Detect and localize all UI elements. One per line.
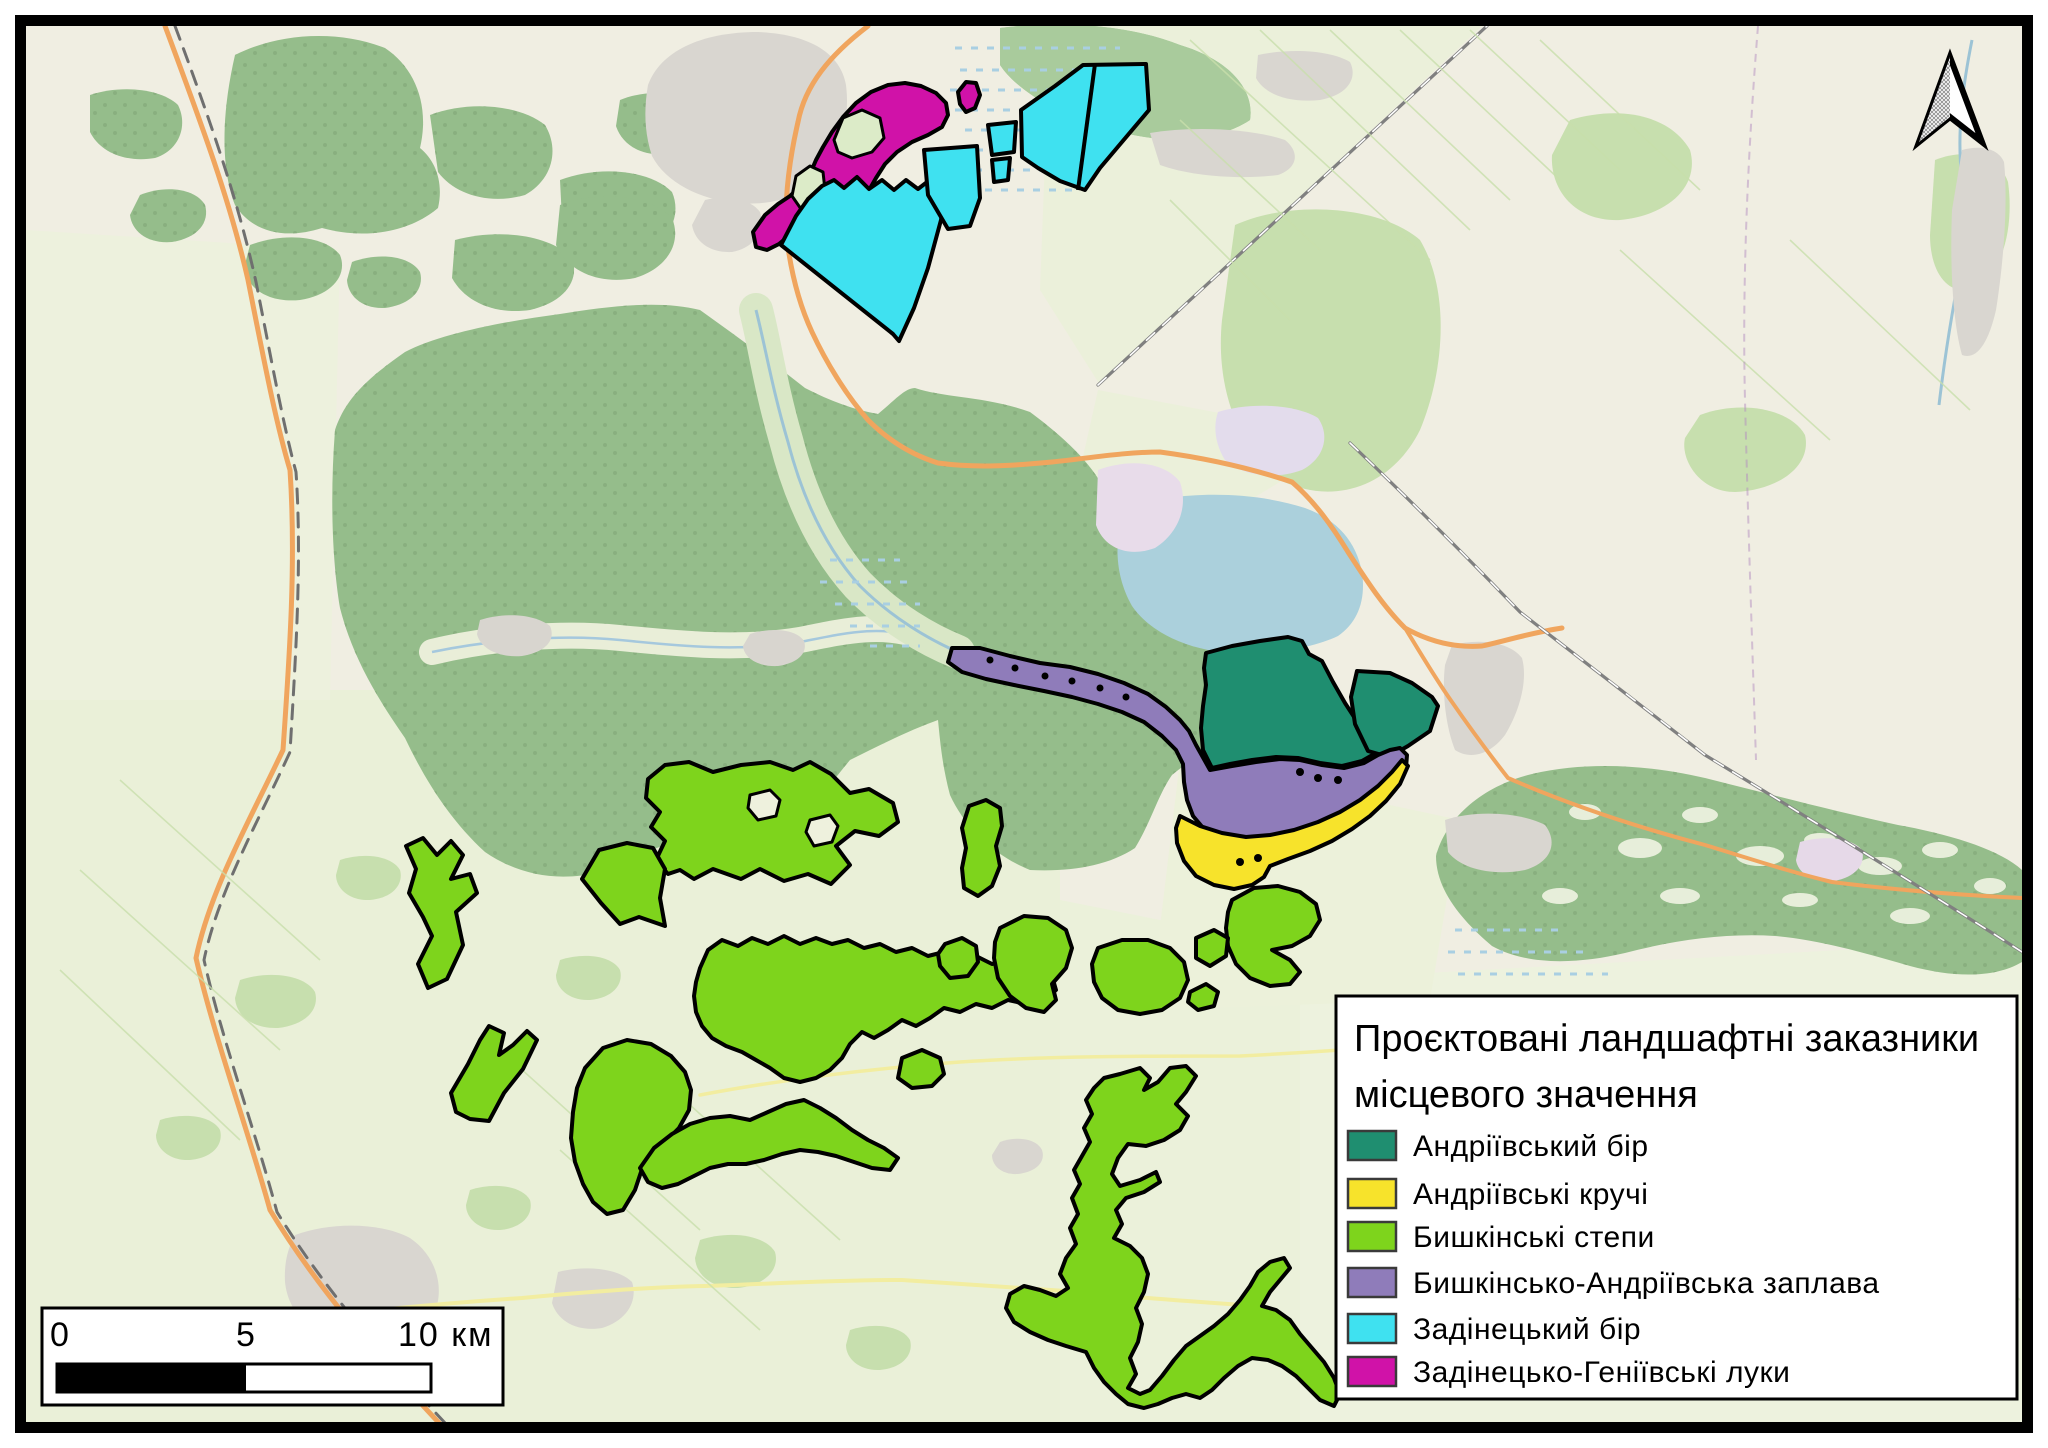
svg-text:Андріївський бір: Андріївський бір bbox=[1413, 1130, 1649, 1163]
svg-text:Проєктовані ландшафтні заказни: Проєктовані ландшафтні заказники bbox=[1354, 1018, 1979, 1060]
svg-text:0: 0 bbox=[50, 1316, 69, 1354]
svg-text:Задінецький бір: Задінецький бір bbox=[1413, 1313, 1641, 1346]
svg-text:Андріївські кручі: Андріївські кручі bbox=[1413, 1178, 1648, 1211]
svg-text:5: 5 bbox=[236, 1316, 255, 1354]
svg-text:Бишкінські степи: Бишкінські степи bbox=[1413, 1221, 1655, 1254]
svg-text:Бишкінсько-Андріївська заплава: Бишкінсько-Андріївська заплава bbox=[1413, 1267, 1880, 1300]
svg-text:10 км: 10 км bbox=[398, 1316, 494, 1354]
svg-text:місцевого значення: місцевого значення bbox=[1354, 1074, 1698, 1116]
svg-text:Задінецько-Геніївські луки: Задінецько-Геніївські луки bbox=[1413, 1356, 1790, 1389]
